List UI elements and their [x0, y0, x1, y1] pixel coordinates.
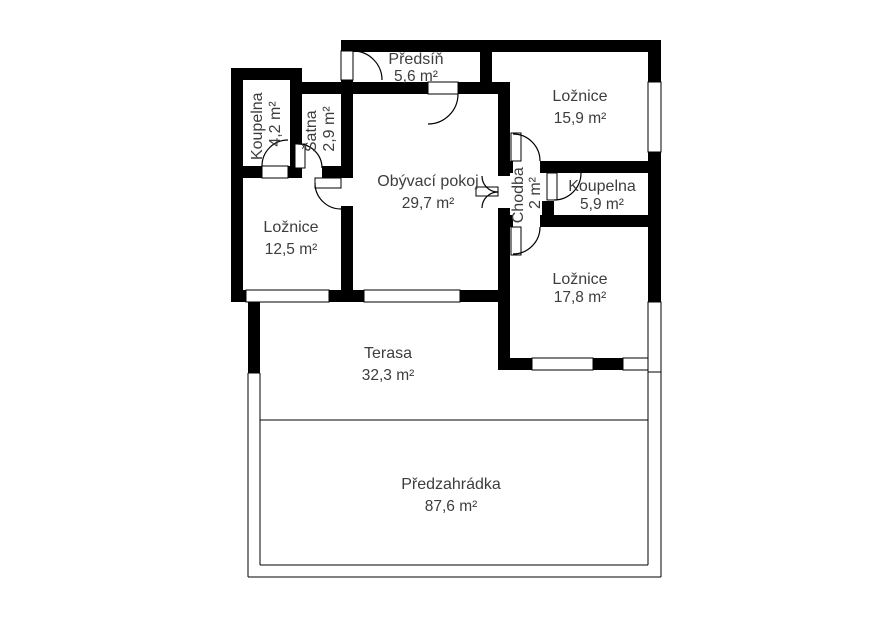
area-loznice-bottom: 17,8 m²	[554, 289, 607, 306]
predsin-obyvaci-door-arc	[428, 94, 458, 124]
label-chodba: Chodba 2 m²	[510, 163, 544, 224]
area-loznice-left: 12,5 m²	[265, 241, 318, 258]
entrance-door-leaf	[341, 51, 353, 80]
chodba-loznice159-door-leaf	[511, 133, 521, 161]
wall-koupelna-satna-bottom-right	[322, 166, 353, 178]
window-loznice178-corner-bottom	[623, 358, 648, 370]
wall-loznice-top-bottom	[540, 161, 661, 173]
label-predzahradka: Předzahrádka	[401, 476, 501, 493]
obyvaci-loznice125-door-leaf	[315, 178, 341, 188]
wall-left-outer	[231, 68, 243, 302]
area-obyvaci-pokoj: 29,7 m²	[402, 195, 455, 212]
window-loznice125-bottom	[246, 290, 329, 302]
window-loznice178-right	[648, 302, 661, 372]
label-loznice-top: Ložnice	[552, 88, 607, 105]
chodba-koupelna59-door-leaf	[547, 173, 557, 200]
entrance-door-arc	[353, 51, 382, 80]
area-koupelna-right: 5,9 m²	[580, 196, 624, 213]
label-loznice-bottom: Ložnice	[552, 271, 607, 288]
wall-loznice178-bottom-mid	[593, 358, 623, 370]
koupelna42-door-leaf	[262, 166, 288, 178]
wall-obyvaci-left-upper	[341, 80, 353, 178]
wall-predsin-right	[480, 40, 492, 94]
area-predzahradka: 87,6 m²	[425, 498, 478, 515]
wall-loznice178-bottom-left	[498, 358, 532, 370]
wall-right-outer-upper	[648, 40, 661, 82]
garden-fence	[248, 372, 661, 577]
window-obyvaci-terasa	[364, 290, 460, 302]
wall-loznice125-obyvaci-bottom-mid	[329, 290, 364, 302]
label-terasa: Terasa	[364, 345, 412, 362]
label-loznice-left: Ložnice	[263, 219, 318, 236]
wall-obyvaci-right-lower	[498, 208, 510, 370]
label-koupelna-right: Koupelna	[568, 178, 636, 195]
chodba-loznice178-door-leaf	[511, 227, 521, 255]
label-satna: Šatna 2,9 m²	[301, 106, 338, 152]
wall-obyvaci-left-lower	[341, 206, 353, 302]
area-predsin: 5,6 m²	[394, 68, 438, 85]
label-obyvaci-pokoj: Obývací pokoj	[377, 173, 478, 190]
window-loznice178-bottom	[532, 358, 593, 370]
label-predsin: Předsíň	[388, 51, 443, 68]
wall-koupelna-satna-bottom-left	[231, 166, 262, 178]
wall-loznice125-bottom-left	[231, 290, 246, 302]
wall-obyvaci-bottom-right	[460, 290, 510, 302]
floor-plan-canvas: Předsíň 5,6 m² Ložnice 15,9 m² Koupelna …	[0, 0, 894, 625]
wall-koupelna59-bottom	[540, 215, 661, 227]
wall-terasa-left	[248, 302, 260, 373]
area-loznice-top: 15,9 m²	[554, 110, 607, 127]
label-koupelna-left: Koupelna 4,2 m²	[249, 88, 284, 160]
wall-right-outer-mid	[648, 152, 661, 302]
window-loznice-top-right	[648, 82, 661, 152]
area-terasa: 32,3 m²	[362, 367, 415, 384]
floor-plan-page: Předsíň 5,6 m² Ložnice 15,9 m² Koupelna …	[0, 0, 894, 625]
